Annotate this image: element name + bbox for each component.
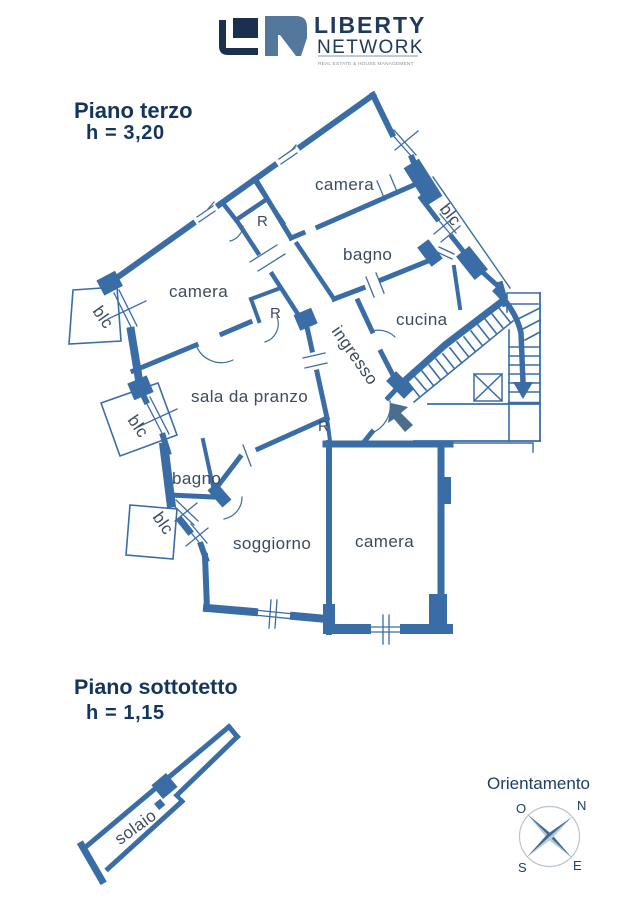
svg-text:N: N	[577, 798, 586, 813]
svg-text:bagno: bagno	[343, 245, 392, 264]
svg-text:camera: camera	[169, 282, 228, 301]
svg-text:camera: camera	[355, 532, 414, 551]
svg-text:h = 3,20: h = 3,20	[86, 122, 165, 144]
svg-text:Piano terzo: Piano terzo	[74, 98, 193, 123]
svg-text:cucina: cucina	[396, 310, 448, 329]
svg-text:S: S	[518, 860, 527, 875]
svg-text:bagno: bagno	[172, 469, 221, 488]
svg-text:NETWORK: NETWORK	[317, 37, 424, 58]
svg-text:h = 1,15: h = 1,15	[86, 702, 165, 724]
svg-text:camera: camera	[315, 175, 374, 194]
svg-text:O: O	[516, 801, 526, 816]
svg-text:soggiorno: soggiorno	[233, 534, 311, 553]
svg-text:R: R	[257, 213, 268, 230]
svg-text:Piano sottotetto: Piano sottotetto	[74, 675, 238, 699]
svg-text:E: E	[573, 858, 582, 873]
svg-text:R: R	[318, 418, 329, 435]
svg-text:Orientamento: Orientamento	[487, 774, 590, 793]
svg-text:sala da pranzo: sala da pranzo	[191, 387, 308, 406]
svg-text:R: R	[270, 305, 281, 322]
svg-text:REAL ESTATE & HOUSE MANAGEMENT: REAL ESTATE & HOUSE MANAGEMENT	[318, 61, 414, 67]
svg-text:LIBERTY: LIBERTY	[314, 12, 426, 38]
